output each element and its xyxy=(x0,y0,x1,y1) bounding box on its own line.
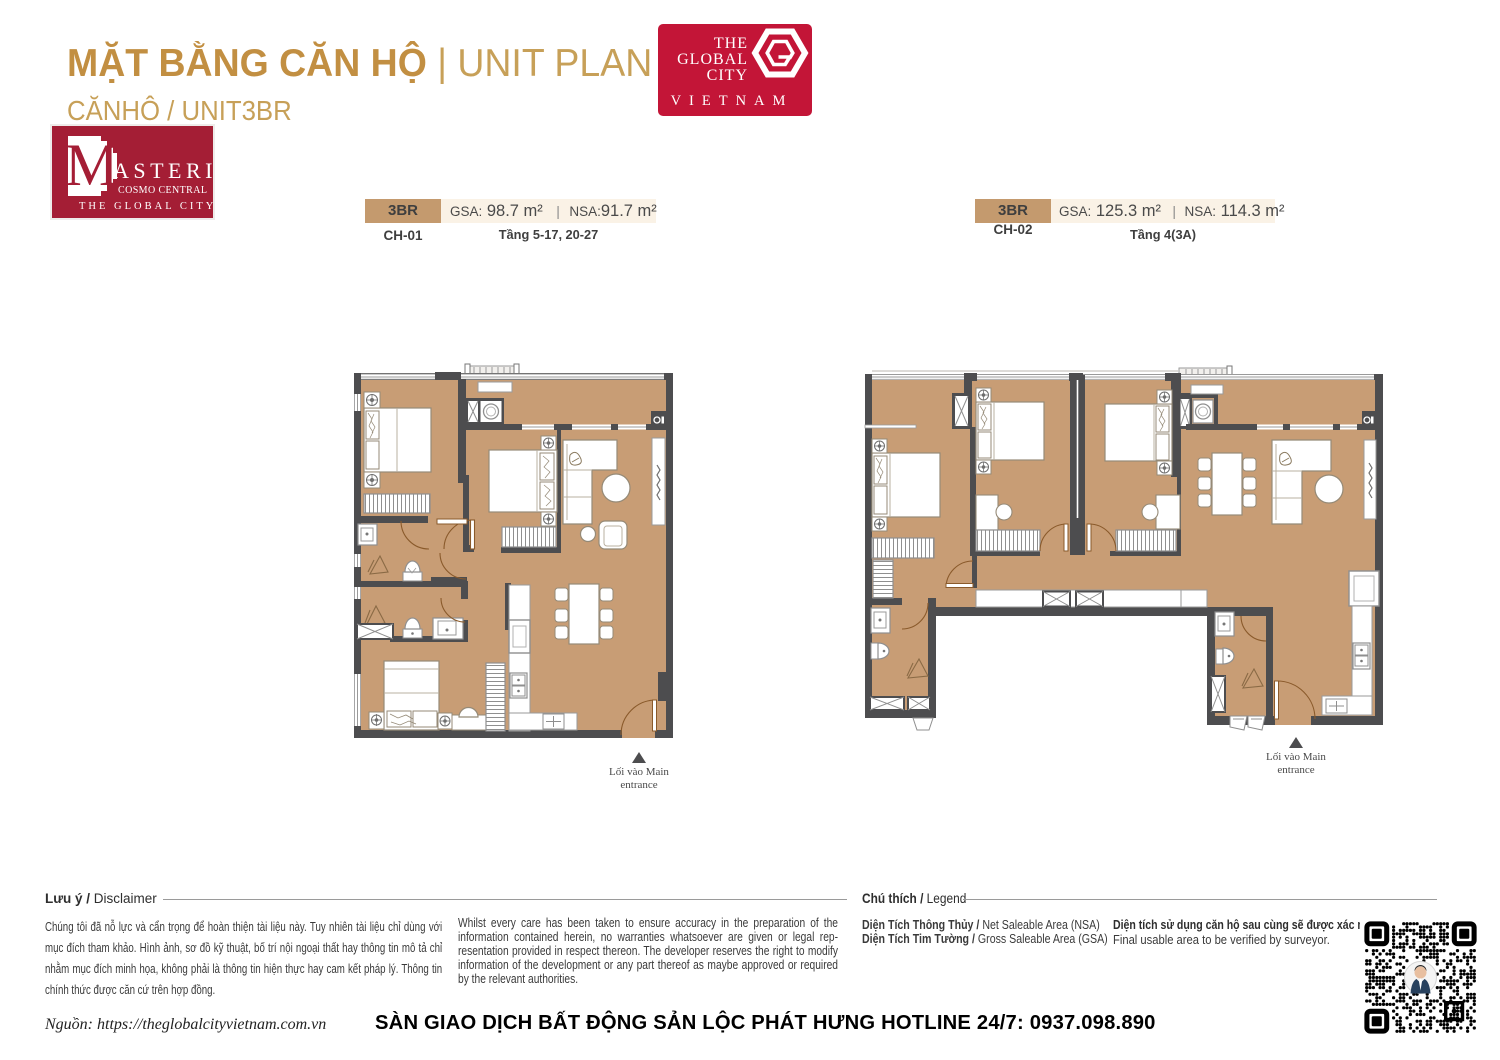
svg-text:ASTERI: ASTERI xyxy=(113,158,213,183)
svg-text:CITY: CITY xyxy=(707,67,748,84)
svg-text:Lối vào Main: Lối vào Main xyxy=(609,766,669,778)
svg-text:Lối vào Main: Lối vào Main xyxy=(1266,751,1326,763)
svg-text:GLOBAL: GLOBAL xyxy=(677,51,748,68)
svg-text:entrance: entrance xyxy=(1277,764,1314,776)
svg-text:VIETNAM: VIETNAM xyxy=(671,93,794,109)
svg-text:entrance: entrance xyxy=(620,779,657,791)
svg-text:THE: THE xyxy=(714,35,748,52)
svg-text:M: M xyxy=(65,132,118,198)
svg-text:COSMO CENTRAL: COSMO CENTRAL xyxy=(118,185,207,196)
svg-text:THE GLOBAL CITY: THE GLOBAL CITY xyxy=(79,201,213,212)
